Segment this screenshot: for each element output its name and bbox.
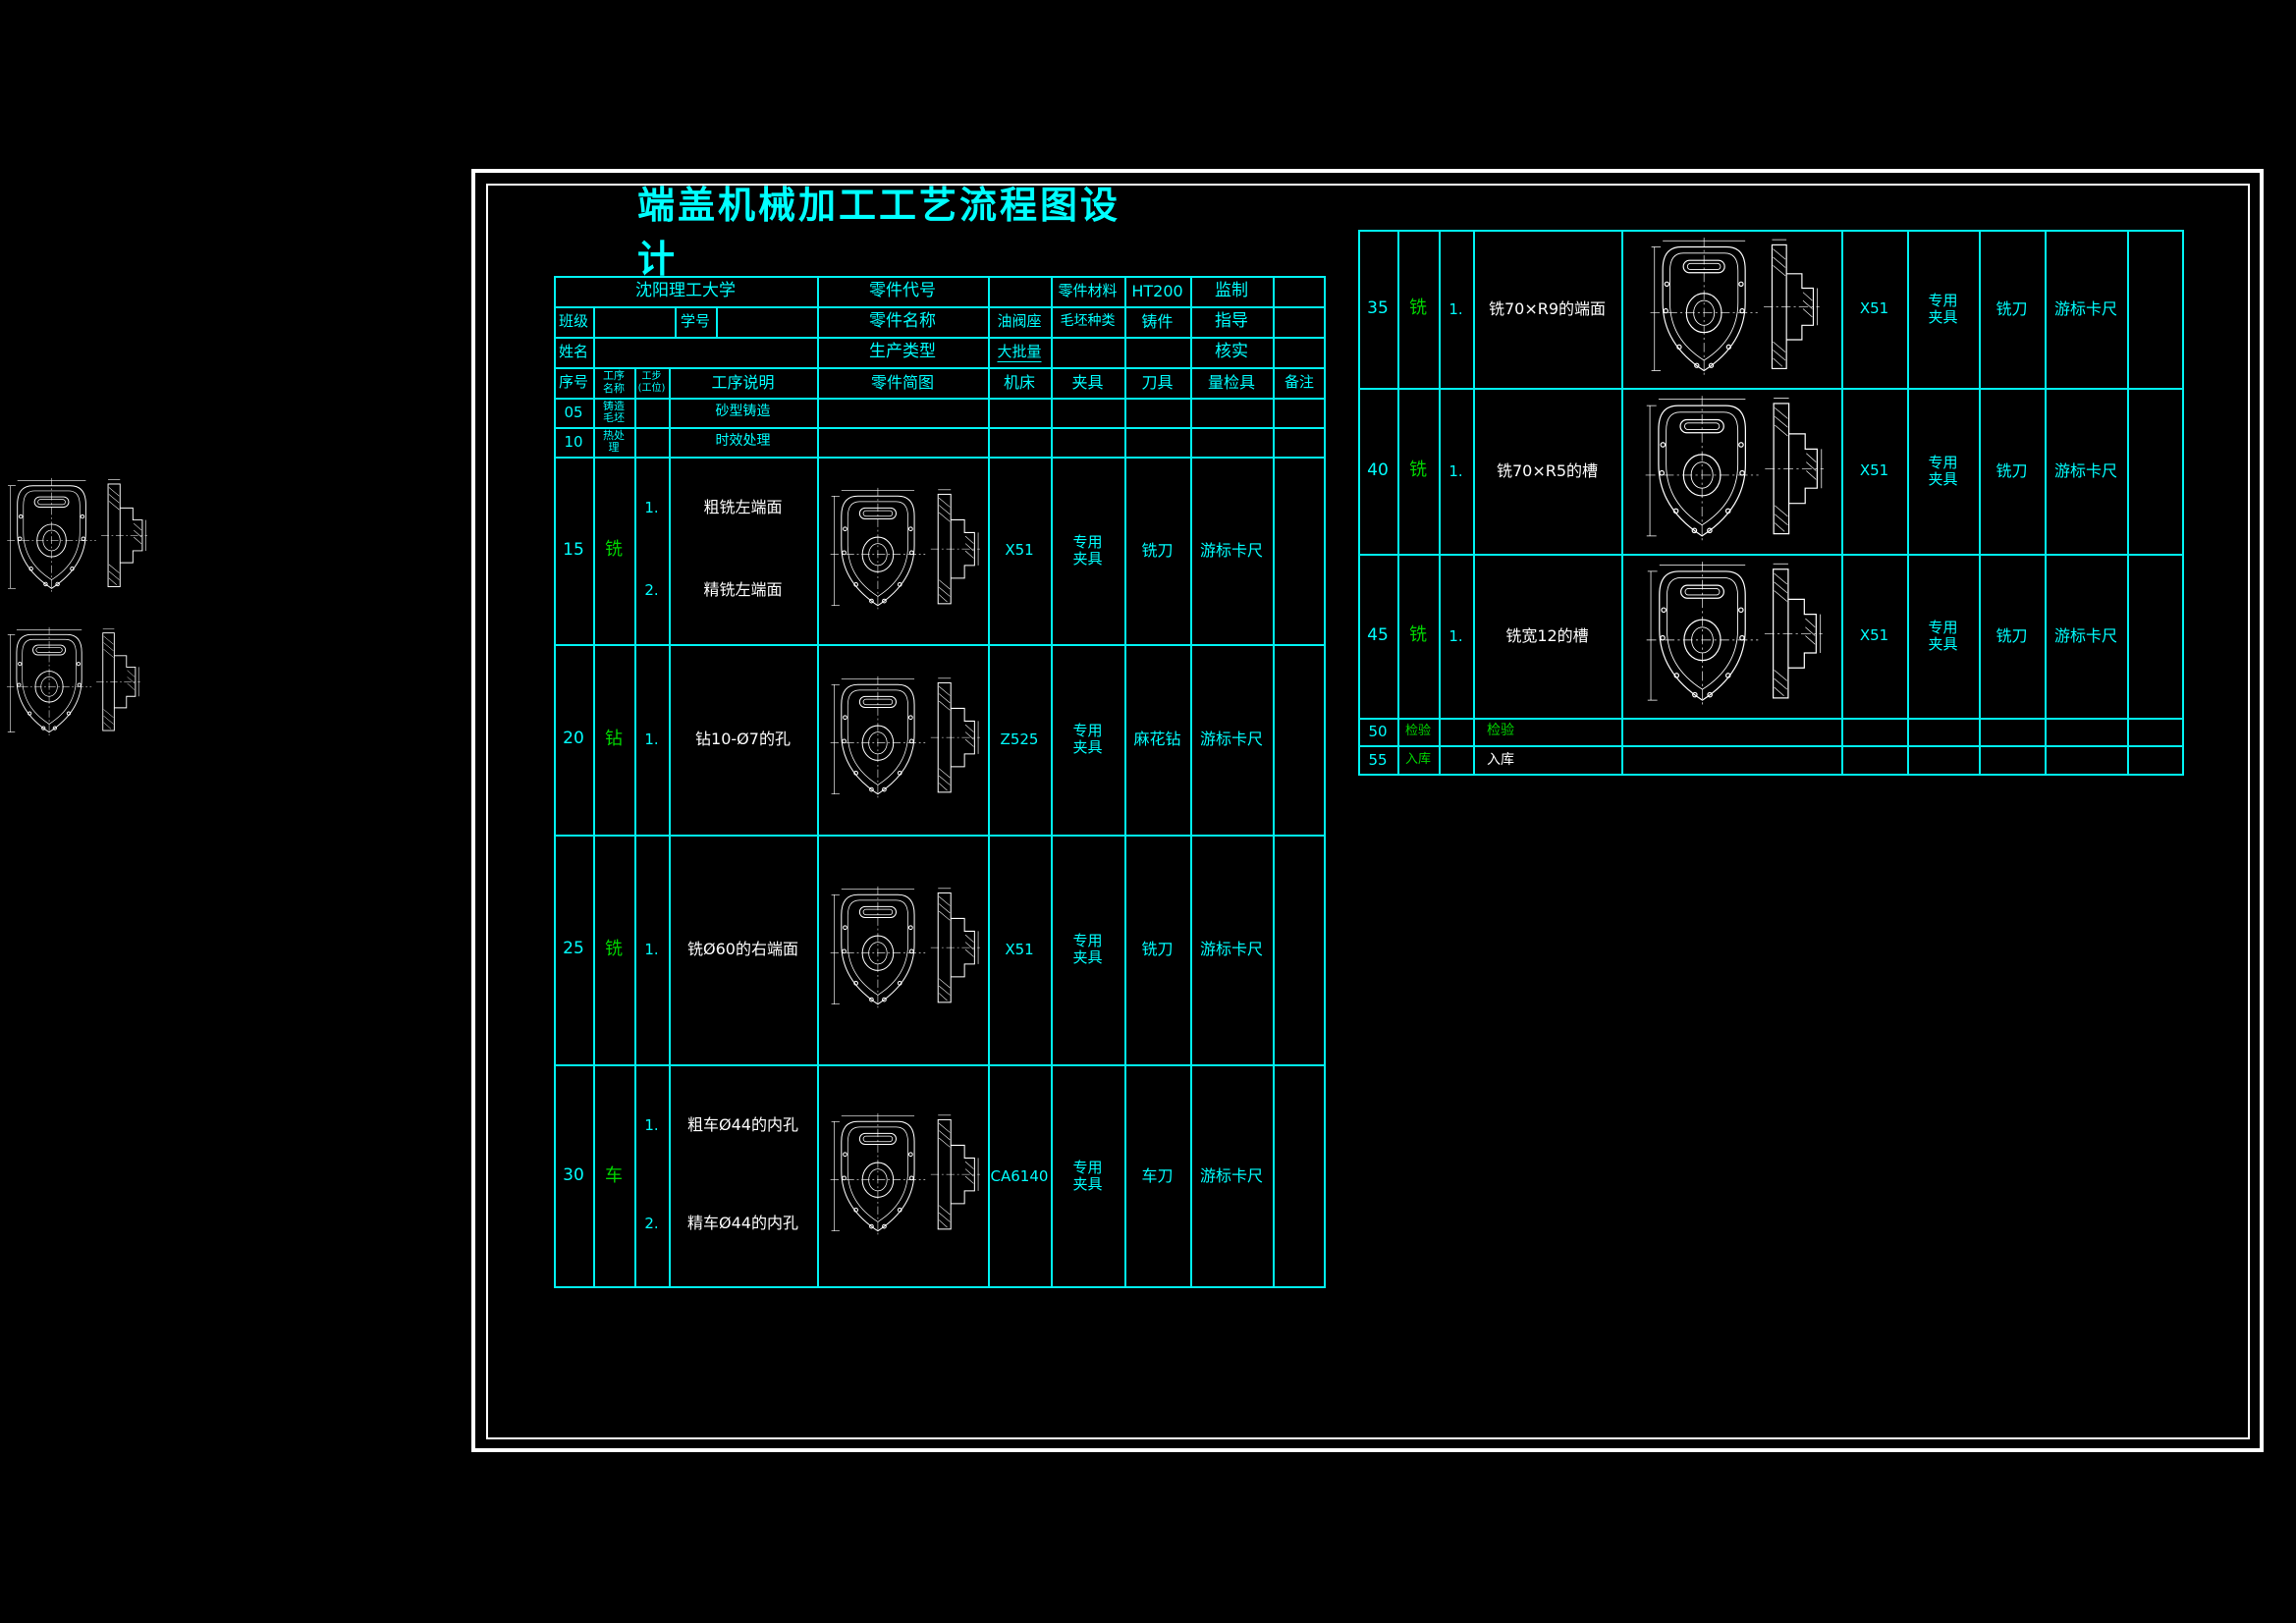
row-35-part-sketch [1644, 237, 1820, 385]
right_table-rows-2-fixture: 专用 夹具 [1907, 554, 1979, 718]
column-header-4: 零件简图 [817, 367, 988, 398]
right_table-rows-0-tool: 铣刀 [1979, 230, 2045, 388]
column-header-5: 机床 [988, 367, 1051, 398]
row-45-part-sketch [1640, 561, 1823, 715]
right_table-rows-4-descriptions-0: 入库 [1473, 750, 1621, 772]
main_table-rows-2-machine: X51 [988, 457, 1051, 644]
main_table-rows-5-fixture: 专用 夹具 [1051, 1064, 1124, 1288]
row-40-part-sketch [1639, 395, 1824, 551]
info-blank_type: 铸件 [1124, 306, 1190, 337]
main_table-rows-4-steps-0: 1. [634, 939, 669, 960]
right_table-rows-2-steps-0: 1. [1439, 625, 1473, 647]
right_table-rows-2-no: 45 [1358, 554, 1397, 718]
cad-drawing-canvas: 端盖机械加工工艺流程图设计 沈阳理工大学零件代号零件材料HT200监制班级学号零… [0, 0, 2296, 1623]
main_table-rows-5-tool: 车刀 [1124, 1064, 1190, 1288]
right_table-rows-0-gauge: 游标卡尺 [2045, 230, 2127, 388]
info-school: 沈阳理工大学 [554, 276, 817, 306]
right_table-rows-2-machine: X51 [1841, 554, 1907, 718]
table-grid-line [1358, 718, 2184, 720]
main_table-rows-4-descriptions-0: 铣Ø60的右端面 [669, 939, 817, 960]
main_table-rows-5-descriptions-0: 粗车Ø44的内孔 [669, 1114, 817, 1136]
main_table-rows-2-descriptions-1: 精铣左端面 [669, 579, 817, 601]
column-header-1: 工序 名称 [593, 367, 634, 398]
right_table-rows-1-no: 40 [1358, 388, 1397, 554]
main_table-rows-4-gauge: 游标卡尺 [1190, 835, 1273, 1064]
main_table-rows-2-no: 15 [554, 457, 593, 644]
right_table-rows-1-tool: 铣刀 [1979, 388, 2045, 554]
info-verify_label: 核实 [1190, 337, 1273, 367]
main_table-rows-4-process: 铣 [593, 835, 634, 1064]
main_table-rows-5-descriptions-1: 精车Ø44的内孔 [669, 1213, 817, 1234]
row-30-part-sketch [825, 1112, 980, 1244]
right_table-rows-3-process: 检验 [1397, 718, 1439, 745]
main_table-rows-3-machine: Z525 [988, 644, 1051, 835]
right_table-rows-1-machine: X51 [1841, 388, 1907, 554]
main_table-rows-4-machine: X51 [988, 835, 1051, 1064]
column-header-8: 量检具 [1190, 367, 1273, 398]
table-grid-line [2127, 230, 2129, 776]
main_table-rows-3-gauge: 游标卡尺 [1190, 644, 1273, 835]
main_table-rows-3-tool: 麻花钻 [1124, 644, 1190, 835]
info-blank_type_label: 毛坯种类 [1051, 306, 1124, 337]
right_table-rows-0-steps-0: 1. [1439, 298, 1473, 320]
main_table-rows-1-process: 热处 理 [593, 427, 634, 457]
right_table-rows-2-descriptions-0: 铣宽12的槽 [1473, 625, 1621, 647]
main_table-rows-4-no: 25 [554, 835, 593, 1064]
info-class_label: 班级 [554, 306, 593, 337]
drawing-title: 端盖机械加工工艺流程图设计 [637, 206, 1160, 251]
right_table-rows-4-no: 55 [1358, 745, 1397, 776]
right_table-rows-0-no: 35 [1358, 230, 1397, 388]
right_table-rows-1-descriptions-0: 铣70×R5的槽 [1473, 460, 1621, 482]
table-grid-line [554, 398, 1326, 400]
info-name_label: 姓名 [554, 337, 593, 367]
info-part_code_label: 零件代号 [817, 276, 988, 306]
main_table-rows-2-fixture: 专用 夹具 [1051, 457, 1124, 644]
main_table-rows-3-fixture: 专用 夹具 [1051, 644, 1124, 835]
main_table-rows-0-descriptions-0: 砂型铸造 [669, 402, 817, 423]
main_table-rows-5-gauge: 游标卡尺 [1190, 1064, 1273, 1288]
main_table-rows-5-machine: CA6140 [988, 1064, 1051, 1288]
column-header-6: 夹具 [1051, 367, 1124, 398]
info-part_name_label: 零件名称 [817, 306, 988, 337]
table-grid-line [554, 427, 1326, 429]
loose-part-views-top [2, 477, 177, 597]
right_table-rows-2-gauge: 游标卡尺 [2045, 554, 2127, 718]
info-production_type_label: 生产类型 [817, 337, 988, 367]
main_table-rows-2-steps-1: 2. [634, 579, 669, 601]
right_table-rows-3-descriptions-0: 检验 [1473, 721, 1621, 742]
info-production_type: 大批量 [988, 337, 1051, 367]
right_table-rows-4-process: 入库 [1397, 745, 1439, 776]
loose-part-views-bottom [2, 626, 161, 740]
row-25-part-sketch [825, 886, 980, 1017]
info-student_id_label: 学号 [675, 306, 716, 337]
main_table-rows-2-descriptions-0: 粗铣左端面 [669, 497, 817, 518]
column-header-7: 刀具 [1124, 367, 1190, 398]
main_table-rows-4-fixture: 专用 夹具 [1051, 835, 1124, 1064]
right_table-rows-0-process: 铣 [1397, 230, 1439, 388]
main_table-rows-2-process: 铣 [593, 457, 634, 644]
main_table-rows-4-tool: 铣刀 [1124, 835, 1190, 1064]
column-header-2: 工步 (工位) [634, 367, 669, 398]
table-grid-line [1621, 230, 1623, 776]
right_table-rows-2-process: 铣 [1397, 554, 1439, 718]
right_table-rows-1-gauge: 游标卡尺 [2045, 388, 2127, 554]
column-header-9: 备注 [1273, 367, 1326, 398]
column-header-0: 序号 [554, 367, 593, 398]
right_table-rows-3-no: 50 [1358, 718, 1397, 745]
main_table-rows-3-descriptions-0: 钻10-Ø7的孔 [669, 729, 817, 750]
main_table-rows-3-steps-0: 1. [634, 729, 669, 750]
right_table-rows-0-fixture: 专用 夹具 [1907, 230, 1979, 388]
info-part_material_label: 零件材料 [1051, 276, 1124, 306]
main_table-rows-5-no: 30 [554, 1064, 593, 1288]
main_table-rows-1-no: 10 [554, 427, 593, 457]
info-part_name: 油阀座 [988, 306, 1051, 337]
table-grid-line [716, 306, 718, 337]
main_table-rows-5-process: 车 [593, 1064, 634, 1288]
row-20-part-sketch [825, 676, 980, 807]
right_table-rows-1-process: 铣 [1397, 388, 1439, 554]
info-part_material: HT200 [1124, 276, 1190, 306]
right_table-rows-1-fixture: 专用 夹具 [1907, 388, 1979, 554]
column-header-3: 工序说明 [669, 367, 817, 398]
main_table-rows-2-gauge: 游标卡尺 [1190, 457, 1273, 644]
main_table-rows-0-no: 05 [554, 398, 593, 427]
row-15-part-sketch [825, 487, 980, 619]
main_table-rows-5-steps-0: 1. [634, 1114, 669, 1136]
right_table-rows-0-machine: X51 [1841, 230, 1907, 388]
table-grid-line [1358, 745, 2184, 747]
main_table-rows-5-steps-1: 2. [634, 1213, 669, 1234]
right_table-rows-0-descriptions-0: 铣70×R9的端面 [1473, 298, 1621, 320]
info-advisor_label: 指导 [1190, 306, 1273, 337]
main_table-rows-2-steps-0: 1. [634, 497, 669, 518]
main_table-rows-1-descriptions-0: 时效处理 [669, 431, 817, 453]
right_table-rows-1-steps-0: 1. [1439, 460, 1473, 482]
info-supervise_label: 监制 [1190, 276, 1273, 306]
main_table-rows-3-process: 钻 [593, 644, 634, 835]
main_table-rows-0-process: 铸造 毛坯 [593, 398, 634, 427]
main_table-rows-3-no: 20 [554, 644, 593, 835]
main_table-rows-2-tool: 铣刀 [1124, 457, 1190, 644]
right_table-rows-2-tool: 铣刀 [1979, 554, 2045, 718]
